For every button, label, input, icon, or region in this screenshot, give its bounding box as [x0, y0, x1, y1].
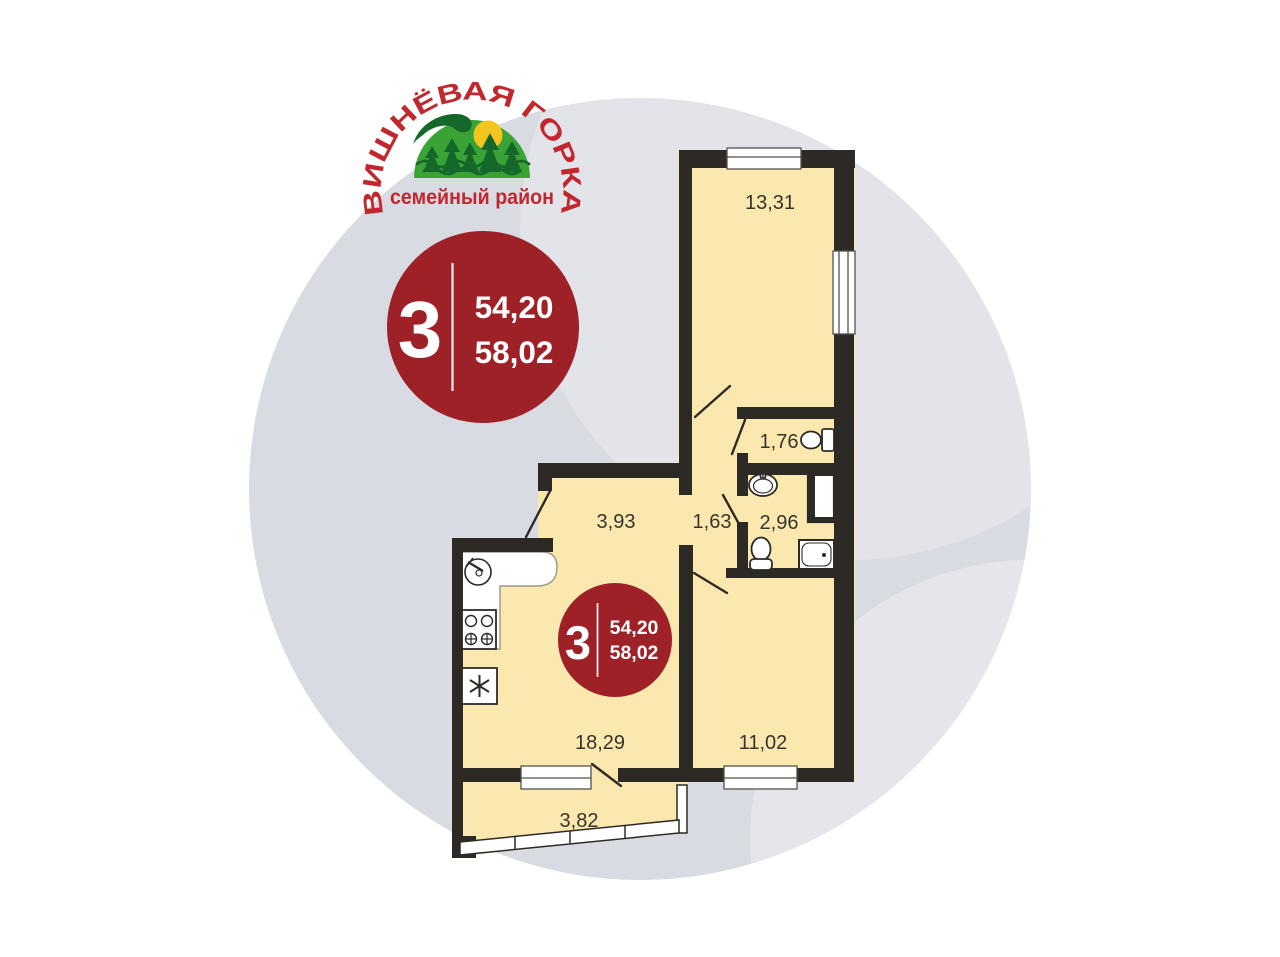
label-hallway: 3,93	[597, 511, 636, 533]
wall-wc-left-stub	[737, 407, 748, 419]
toilet-icon-bathroom	[750, 538, 772, 571]
badge-small-area-living: 54,20	[610, 617, 659, 639]
brand-logo: ВИШНЁВАЯ ГОРКА семейный район	[356, 75, 587, 217]
wall-left-upper	[679, 150, 692, 495]
label-room: 13,31	[745, 192, 795, 214]
wall-kitchen-bottom-left	[452, 768, 523, 782]
floorplan-image: 13,31 1,76 3,93 1,63 2,96 18,29 11,02 3,…	[0, 0, 1280, 957]
area-badge-large: 3 54,20 58,02	[387, 231, 579, 423]
bathtub-icon	[799, 540, 834, 569]
label-balcony: 3,82	[560, 810, 599, 832]
label-corridor: 1,63	[693, 511, 732, 533]
badge-small-rooms-count: 3	[565, 616, 591, 669]
wall-room-wc-divider	[737, 407, 854, 419]
area-badge-small: 3 54,20 58,02	[558, 583, 672, 697]
stove-icon	[462, 610, 496, 649]
badge-rooms-count: 3	[398, 285, 443, 374]
window-top	[727, 148, 801, 169]
label-wc: 1,76	[760, 431, 799, 453]
sink-icon	[465, 558, 491, 585]
plan-canvas: 13,31 1,76 3,93 1,63 2,96 18,29 11,02 3,…	[0, 0, 1280, 957]
watermark	[948, 796, 1138, 844]
wall-wc-bath-divider	[737, 463, 854, 475]
badge-area-total: 58,02	[475, 334, 554, 370]
logo-subtitle: семейный район	[390, 186, 554, 209]
window-bedroom	[724, 766, 797, 789]
window-right	[833, 251, 855, 334]
window-kitchen	[521, 766, 591, 789]
washer-icon	[808, 470, 834, 522]
wall-hall-top	[540, 463, 692, 478]
label-kitchen-living: 18,29	[575, 732, 625, 754]
wall-kitchen-bedroom	[679, 545, 693, 782]
badge-small-area-total: 58,02	[610, 642, 659, 664]
label-bedroom: 11,02	[739, 732, 788, 754]
wall-kitchen-bottom-right	[618, 768, 692, 782]
wall-entrance-bottom	[452, 538, 553, 552]
badge-area-living: 54,20	[475, 289, 554, 325]
label-bathroom: 2,96	[760, 512, 799, 534]
wall-bath-left-upper	[737, 475, 748, 496]
fridge-icon	[462, 668, 497, 704]
wall-entrance-stub	[538, 463, 552, 491]
